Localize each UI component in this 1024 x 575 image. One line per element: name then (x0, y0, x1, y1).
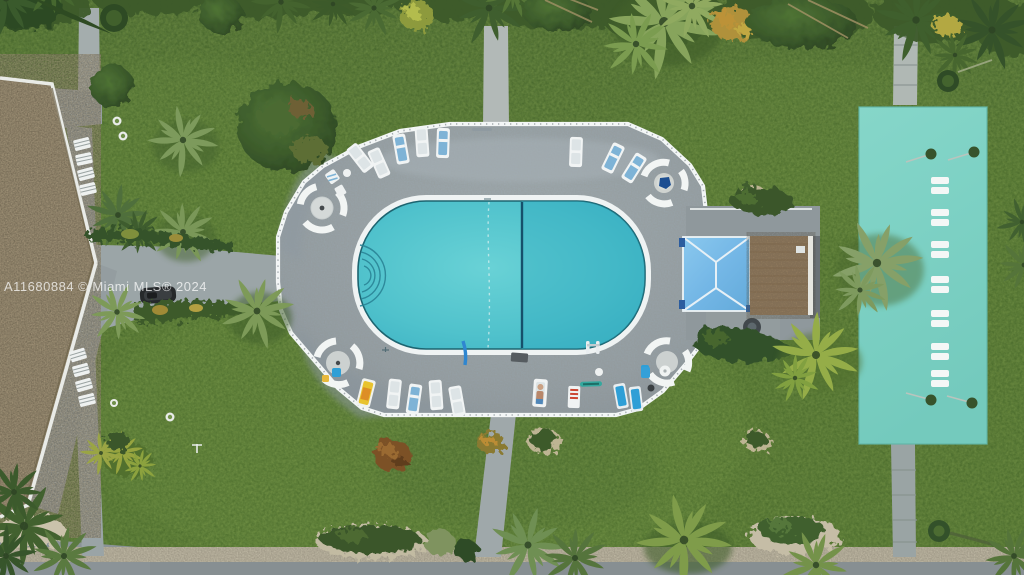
svg-text:A11680884 © Miami MLS® 2024: A11680884 © Miami MLS® 2024 (4, 279, 207, 294)
